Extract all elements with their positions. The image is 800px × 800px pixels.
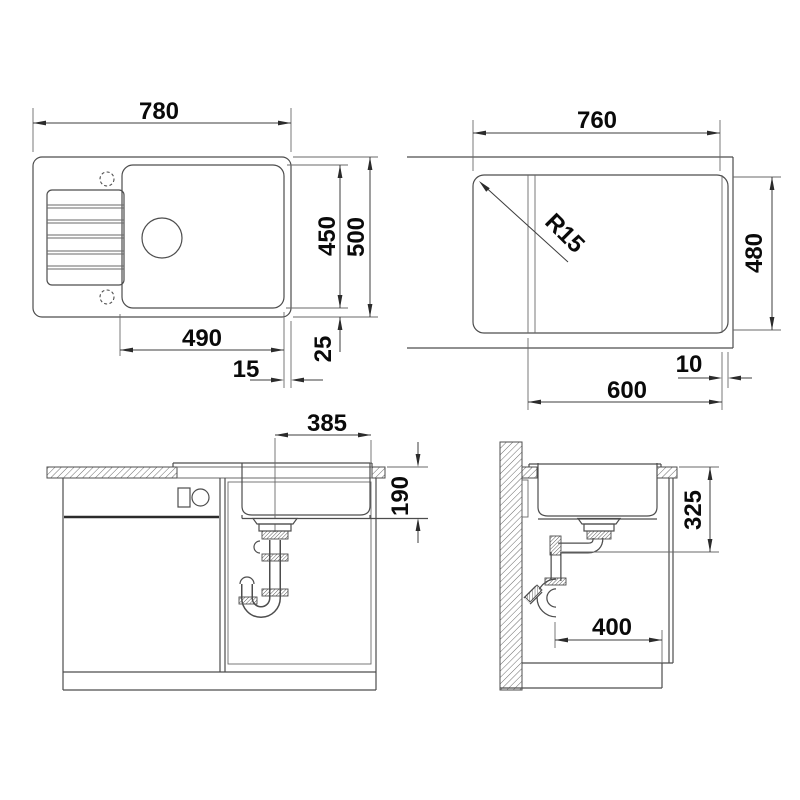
worktop-hatch-left [522,467,537,478]
dim-label-325: 325 [680,490,707,530]
sink-cabinet-interior [228,482,371,664]
dim-label-r15: R15 [540,208,590,258]
dim-label-760: 760 [577,107,617,134]
dim-label-385: 385 [307,410,347,437]
side-bowl [538,463,657,519]
drain-elbow-curl [254,541,260,553]
side-section-view: 325 400 [500,442,719,690]
bowl-section [242,463,370,515]
dim-480: 480 [733,177,781,330]
bowl-outline [122,165,284,308]
dim-400: 400 [555,614,662,663]
front-worktop [47,463,385,478]
side-waste-trap [525,519,620,613]
drainboard-outline [47,190,124,285]
front-waste-trap [239,519,297,613]
sink-drawing-canvas: 780 450 500 25 [0,0,800,800]
trap-cleanout-cap [240,577,254,584]
wall-hatch [500,442,522,690]
dim-490: 490 [120,312,284,388]
drain-body [584,524,614,531]
tap-hole-bottom [100,290,114,304]
side-worktop [522,464,677,517]
tap-hole-top [100,172,114,186]
front-section-view: 385 190 [47,410,428,690]
pipe-nut [262,589,288,596]
dim-label-600: 600 [607,377,647,404]
pipe-nut [239,597,257,604]
drain-nut [262,531,288,539]
dim-25: 25 [310,317,342,362]
radius-callout-r15: R15 [479,181,590,262]
pipe-nut [545,578,566,585]
dim-label-480: 480 [741,233,768,273]
wall-batten [522,480,528,517]
dim-10: 10 [676,351,752,388]
drain-nut [587,531,611,539]
plan-sink-outline [33,157,291,317]
dim-385: 385 [275,410,371,462]
pipe-nut [262,554,288,561]
dim-325: 325 [562,467,719,552]
dim-label-10: 10 [676,351,703,378]
bowl-underside-outline [473,175,728,333]
dim-label-780: 780 [139,98,179,125]
bowl-section [538,463,657,516]
worktop-hatch-left [47,467,177,478]
dim-label-190: 190 [387,476,414,516]
dim-label-15: 15 [233,356,260,383]
dim-label-400: 400 [592,614,632,641]
pipe-nut [550,536,561,555]
front-cabinet [63,478,376,690]
drain-hole [142,218,182,258]
dim-450: 450 [286,165,348,308]
dim-760: 760 [473,107,720,171]
control-knob-circle [192,489,209,506]
worktop-hatch-right [372,467,385,478]
side-cabinet [500,478,673,688]
dim-label-450: 450 [314,216,341,256]
drainboard-ribs [47,205,124,269]
side-wall [500,442,522,690]
dim-label-25: 25 [310,336,337,363]
control-knob-rect [178,488,190,507]
dim-label-500: 500 [343,217,370,257]
underside-view: R15 760 480 600 [407,107,781,410]
sink-outer-edge [33,157,291,317]
dim-780: 780 [33,98,291,152]
worktop-hatch-right [657,467,677,478]
technical-drawing-page: 780 450 500 25 [0,0,800,800]
dim-190: 190 [387,442,428,543]
dim-label-490: 490 [182,325,222,352]
plan-view: 780 450 500 25 [33,98,378,388]
